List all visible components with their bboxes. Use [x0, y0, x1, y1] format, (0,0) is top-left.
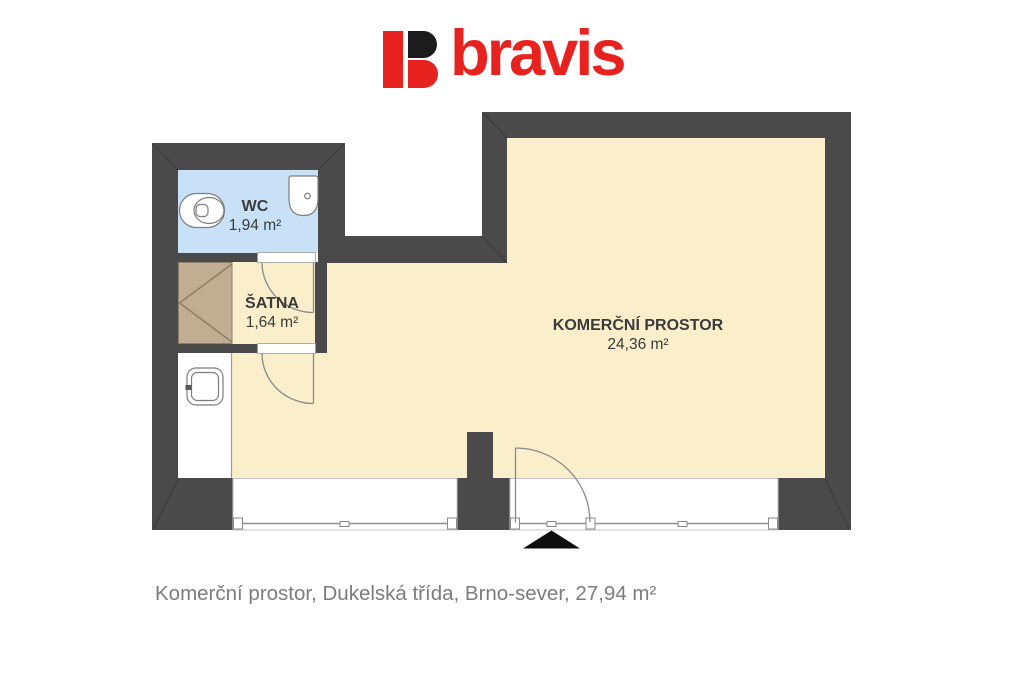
bottom-right-corner-wall	[778, 478, 851, 530]
wc-label: WC 1,94 m²	[229, 197, 282, 235]
room-area: 1,64 m²	[245, 313, 299, 332]
toilet	[180, 194, 225, 228]
room-area: 1,94 m²	[229, 216, 282, 235]
page: bravis	[0, 0, 1024, 677]
leftblock-top-wall	[152, 143, 345, 170]
room-name: KOMERČNÍ PROSTOR	[553, 316, 723, 335]
floor-plan	[0, 0, 1024, 677]
room-name: WC	[229, 197, 282, 216]
connector-wall	[318, 236, 507, 263]
satna-right-wall	[315, 262, 327, 353]
kitchen-sink	[186, 368, 224, 405]
washbasin	[289, 176, 318, 216]
left-outer-wall	[152, 143, 178, 530]
entrance-arrow	[523, 531, 580, 549]
bottom-pier-wall	[457, 478, 510, 530]
rightblock-top-wall	[482, 112, 851, 138]
room-name: ŠATNA	[245, 294, 299, 313]
satna-label: ŠATNA 1,64 m²	[245, 294, 299, 332]
komercni-prostor-label: KOMERČNÍ PROSTOR 24,36 m²	[553, 316, 723, 354]
stub-wall	[467, 432, 493, 478]
listing-caption: Komerční prostor, Dukelská třída, Brno-s…	[155, 582, 656, 606]
room-area: 24,36 m²	[553, 335, 723, 354]
satna-bottom-wall	[152, 344, 258, 353]
wc-door-opening	[258, 253, 316, 263]
wardrobe	[179, 263, 233, 344]
wc-satna-divider-wall	[178, 253, 258, 262]
bottom-left-corner-wall	[152, 478, 233, 530]
satna-door-opening	[258, 344, 316, 354]
right-outer-wall	[825, 112, 851, 530]
